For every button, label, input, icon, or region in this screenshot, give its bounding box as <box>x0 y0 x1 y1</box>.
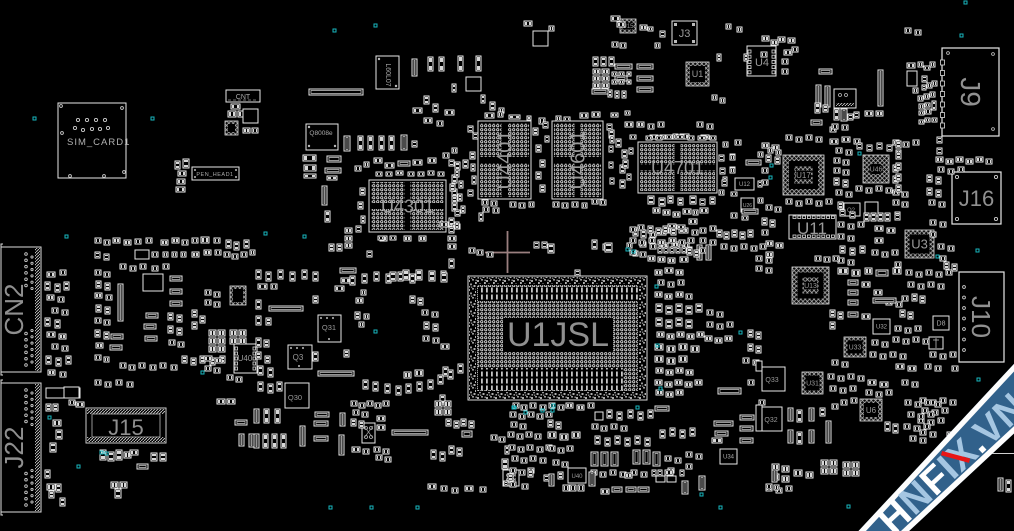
svg-text:Q33: Q33 <box>765 377 778 384</box>
svg-text:Q3: Q3 <box>293 353 304 362</box>
svg-text:Q8008e: Q8008e <box>309 130 333 137</box>
svg-text:U33: U33 <box>849 345 862 352</box>
svg-text:J22: J22 <box>0 427 29 469</box>
svg-text:J3: J3 <box>679 28 691 40</box>
svg-text:Q31: Q31 <box>322 323 336 332</box>
svg-text:U3: U3 <box>911 237 928 252</box>
svg-text:CN2: CN2 <box>0 283 29 335</box>
svg-text:U1: U1 <box>692 69 704 79</box>
svg-text:L60L07: L60L07 <box>384 63 391 86</box>
svg-text:U26: U26 <box>743 203 752 209</box>
svg-text:U4301: U4301 <box>381 196 434 216</box>
svg-text:U4701: U4701 <box>651 158 704 178</box>
svg-text:U34: U34 <box>723 455 735 461</box>
svg-text:U31: U31 <box>806 381 819 388</box>
svg-text:U6: U6 <box>866 406 877 415</box>
svg-text:J16: J16 <box>959 186 994 211</box>
svg-text:U12: U12 <box>739 182 751 188</box>
svg-text:U46: U46 <box>870 167 883 174</box>
svg-text:U4: U4 <box>755 57 769 69</box>
svg-text:U4401: U4401 <box>495 131 517 190</box>
svg-text:U32: U32 <box>876 325 888 331</box>
svg-text:U13: U13 <box>804 283 817 290</box>
svg-text:D8: D8 <box>937 321 946 328</box>
svg-text:U17: U17 <box>796 171 811 180</box>
svg-text:J9: J9 <box>955 77 986 107</box>
svg-text:U40: U40 <box>238 354 253 363</box>
svg-text:U40: U40 <box>571 474 583 480</box>
svg-text:Q32: Q32 <box>764 417 777 424</box>
svg-text:U1JSL: U1JSL <box>507 316 609 354</box>
svg-text:Q30: Q30 <box>288 393 302 402</box>
svg-text:U4601: U4601 <box>568 131 590 190</box>
svg-text:J15: J15 <box>108 415 143 440</box>
svg-text:PEN_HEAD1: PEN_HEAD1 <box>196 172 233 178</box>
svg-text:SIM_CARD1: SIM_CARD1 <box>67 137 130 148</box>
svg-text:J10: J10 <box>966 296 996 338</box>
